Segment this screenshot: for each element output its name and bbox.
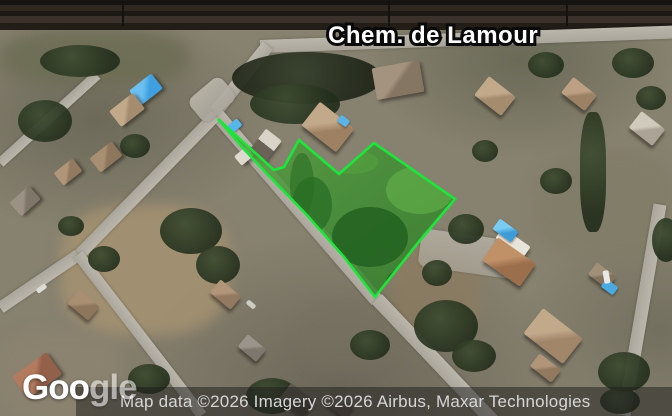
google-logo-faded: gle	[89, 368, 137, 407]
map-viewport[interactable]: Chem. de Lamour Chem. de Lamour Google M…	[0, 0, 672, 416]
google-logo-bright: Goo	[22, 368, 89, 407]
attribution-text: Map data ©2026 Imagery ©2026 Airbus, Max…	[76, 392, 590, 412]
street-label-text: Chem. de Lamour	[328, 22, 538, 50]
attribution-bar: Map data ©2026 Imagery ©2026 Airbus, Max…	[76, 387, 672, 416]
google-logo[interactable]: Google	[22, 368, 137, 408]
parcel-boundary-overlay	[0, 0, 672, 416]
street-label: Chem. de Lamour Chem. de Lamour	[328, 22, 538, 50]
